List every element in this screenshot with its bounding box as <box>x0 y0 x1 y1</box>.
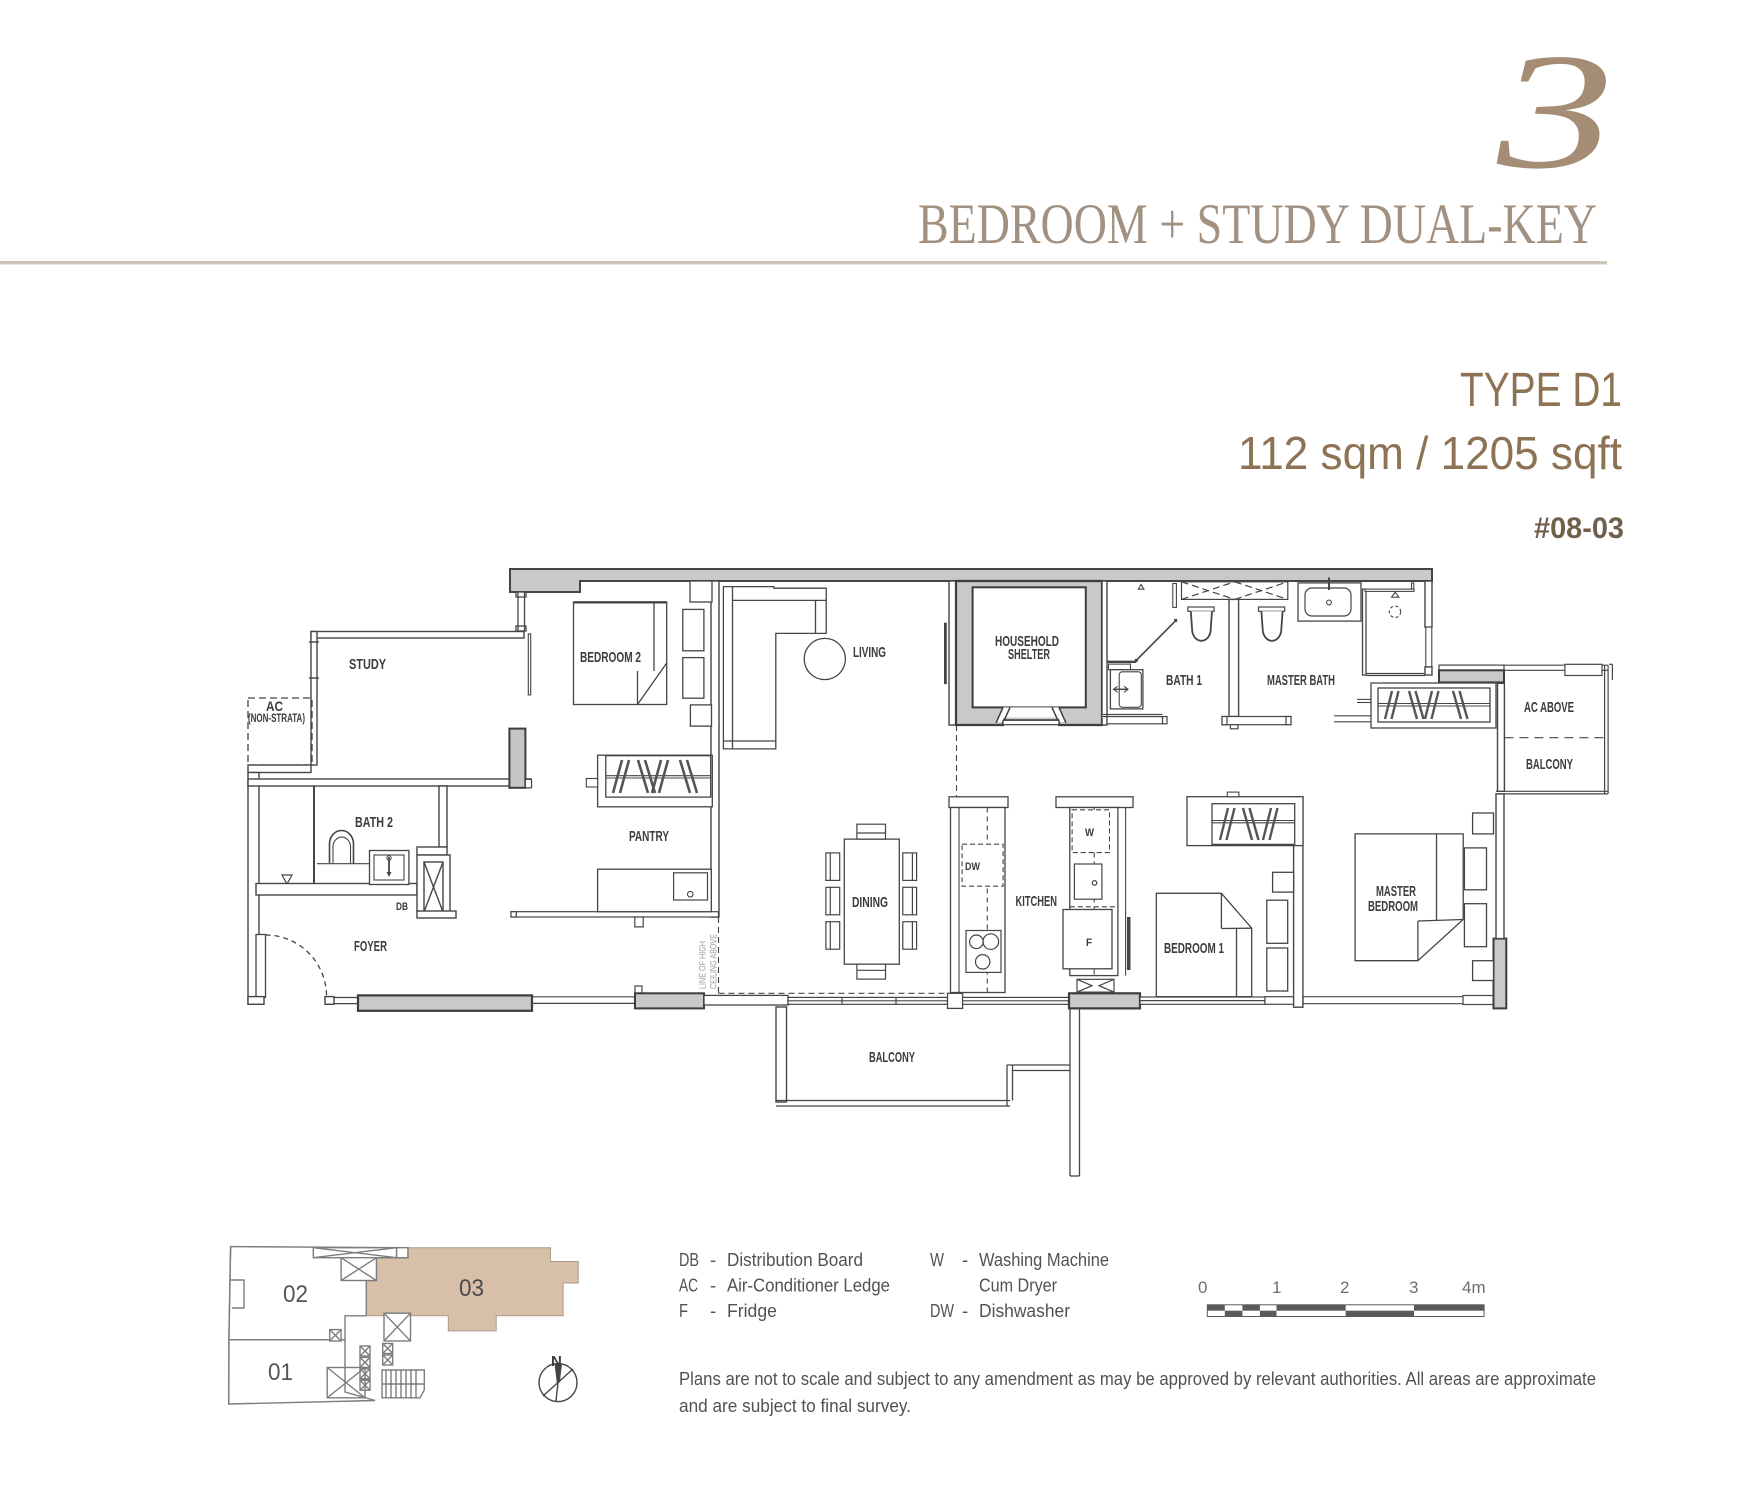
svg-text:W: W <box>1085 827 1095 839</box>
svg-text:02: 02 <box>283 1281 308 1308</box>
svg-text:4m: 4m <box>1462 1278 1486 1297</box>
svg-text:01: 01 <box>268 1359 293 1386</box>
svg-text:Plans are not to scale and sub: Plans are not to scale and subject to an… <box>679 1368 1596 1389</box>
svg-text:DW: DW <box>930 1300 954 1321</box>
svg-text:3: 3 <box>1409 1278 1418 1297</box>
svg-text:MASTER BATH: MASTER BATH <box>1267 672 1335 689</box>
svg-text:Fridge: Fridge <box>727 1300 777 1321</box>
svg-text:CEILING ABOVE: CEILING ABOVE <box>709 934 720 989</box>
svg-text:DW: DW <box>965 861 981 873</box>
svg-text:Air-Conditioner Ledge: Air-Conditioner Ledge <box>727 1275 890 1296</box>
svg-text:-: - <box>962 1249 968 1270</box>
svg-text:2: 2 <box>1340 1278 1349 1297</box>
svg-text:KITCHEN: KITCHEN <box>1016 893 1058 910</box>
svg-text:AC ABOVE: AC ABOVE <box>1524 699 1574 716</box>
svg-text:BEDROOM + STUDY DUAL-KEY: BEDROOM + STUDY DUAL-KEY <box>918 193 1597 256</box>
svg-text:BALCONY: BALCONY <box>1526 756 1573 773</box>
svg-text:(NON-STRATA): (NON-STRATA) <box>248 711 305 725</box>
svg-text:BATH 1: BATH 1 <box>1166 672 1202 689</box>
svg-text:BEDROOM 1: BEDROOM 1 <box>1164 940 1224 957</box>
svg-text:Distribution Board: Distribution Board <box>727 1249 863 1270</box>
svg-text:BATH 2: BATH 2 <box>355 814 393 831</box>
svg-text:TYPE D1: TYPE D1 <box>1460 364 1622 417</box>
svg-text:03: 03 <box>459 1275 484 1302</box>
svg-text:112 sqm / 1205 sqft: 112 sqm / 1205 sqft <box>1238 427 1622 479</box>
svg-text:-: - <box>710 1275 716 1296</box>
svg-text:LINE OF HIGH: LINE OF HIGH <box>698 941 709 989</box>
svg-text:3: 3 <box>1496 19 1614 203</box>
svg-text:DINING: DINING <box>852 894 888 911</box>
svg-text:STUDY: STUDY <box>349 656 386 673</box>
svg-text:LIVING: LIVING <box>853 644 886 661</box>
svg-text:1: 1 <box>1272 1278 1281 1297</box>
svg-text:PANTRY: PANTRY <box>629 828 669 845</box>
svg-text:FOYER: FOYER <box>354 938 387 955</box>
svg-text:-: - <box>710 1249 716 1270</box>
svg-text:-: - <box>962 1300 968 1321</box>
svg-text:BALCONY: BALCONY <box>869 1049 915 1066</box>
svg-text:BEDROOM 2: BEDROOM 2 <box>580 649 641 666</box>
svg-text:W: W <box>930 1249 944 1270</box>
svg-text:#08-03: #08-03 <box>1534 512 1624 545</box>
svg-text:DB: DB <box>679 1249 699 1270</box>
svg-text:F: F <box>679 1300 688 1321</box>
svg-text:BEDROOM: BEDROOM <box>1368 898 1418 915</box>
svg-text:DB: DB <box>396 901 408 913</box>
svg-text:0: 0 <box>1198 1278 1207 1297</box>
svg-text:and are subject to final surve: and are subject to final survey. <box>679 1395 911 1416</box>
svg-text:Washing Machine: Washing Machine <box>979 1249 1109 1270</box>
svg-text:SHELTER: SHELTER <box>1008 646 1050 663</box>
svg-text:F: F <box>1086 937 1092 949</box>
svg-text:Dishwasher: Dishwasher <box>979 1300 1070 1321</box>
svg-text:N: N <box>551 1353 562 1370</box>
svg-text:Cum Dryer: Cum Dryer <box>979 1275 1057 1296</box>
svg-text:AC: AC <box>679 1275 698 1296</box>
svg-text:-: - <box>710 1300 716 1321</box>
